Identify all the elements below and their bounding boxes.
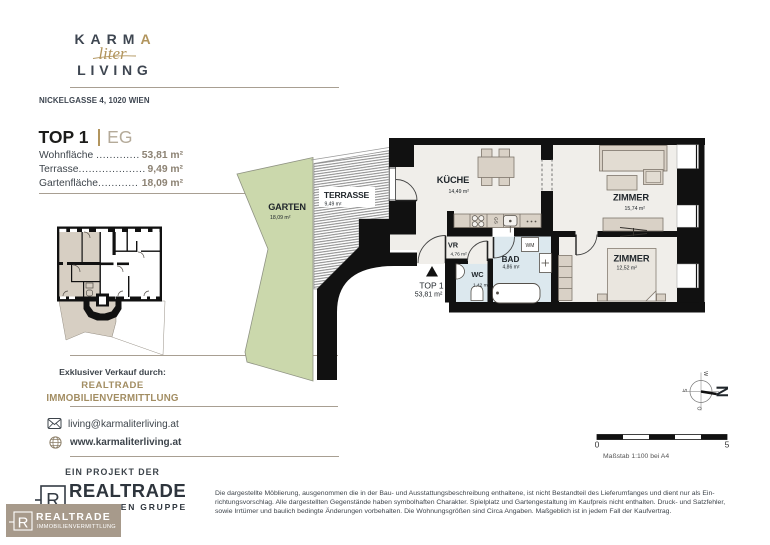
svg-text:15,74 m²: 15,74 m²: [625, 206, 646, 212]
svg-text:53,81 m²: 53,81 m²: [415, 292, 443, 299]
svg-text:4,76 m²: 4,76 m²: [451, 252, 468, 258]
svg-text:richtungsvorschlag. Alle darge: richtungsvorschlag. Alle dargestellten G…: [215, 499, 725, 506]
svg-text:14,49 m²: 14,49 m²: [449, 189, 470, 195]
svg-text:N: N: [713, 386, 731, 398]
svg-text:GARTEN: GARTEN: [268, 202, 306, 212]
svg-text:KÜCHE: KÜCHE: [437, 175, 470, 185]
svg-text:S: S: [681, 389, 687, 393]
svg-text:5: 5: [725, 440, 730, 450]
svg-text:VR: VR: [448, 241, 459, 250]
svg-text:9,49 m²: 9,49 m²: [325, 202, 342, 208]
svg-text:TERRASSE: TERRASSE: [324, 190, 370, 200]
svg-text:O: O: [696, 407, 702, 411]
svg-text:BAD: BAD: [502, 255, 520, 264]
svg-text:TOP 1: TOP 1: [419, 281, 444, 291]
svg-text:0: 0: [595, 440, 600, 450]
svg-text:WM: WM: [526, 243, 535, 249]
svg-text:4,86 m²: 4,86 m²: [503, 265, 520, 271]
svg-text:12,52 m²: 12,52 m²: [617, 266, 638, 272]
svg-text:Die dargestellte Möblierung, a: Die dargestellte Möblierung, ausgenommen…: [215, 490, 715, 497]
svg-text:ZIMMER: ZIMMER: [613, 193, 649, 203]
svg-text:WC: WC: [471, 270, 484, 279]
svg-text:Maßstab 1:100 bei A4: Maßstab 1:100 bei A4: [603, 453, 669, 460]
svg-text:18,09 m²: 18,09 m²: [270, 215, 291, 221]
svg-text:GS: GS: [494, 217, 499, 224]
svg-text:ZIMMER: ZIMMER: [613, 254, 649, 264]
svg-text:1,42 m²: 1,42 m²: [473, 282, 490, 288]
svg-text:sowie Irrtümer und baulich bed: sowie Irrtümer und baulich bedingte Ände…: [215, 507, 671, 515]
svg-text:W: W: [702, 371, 708, 376]
